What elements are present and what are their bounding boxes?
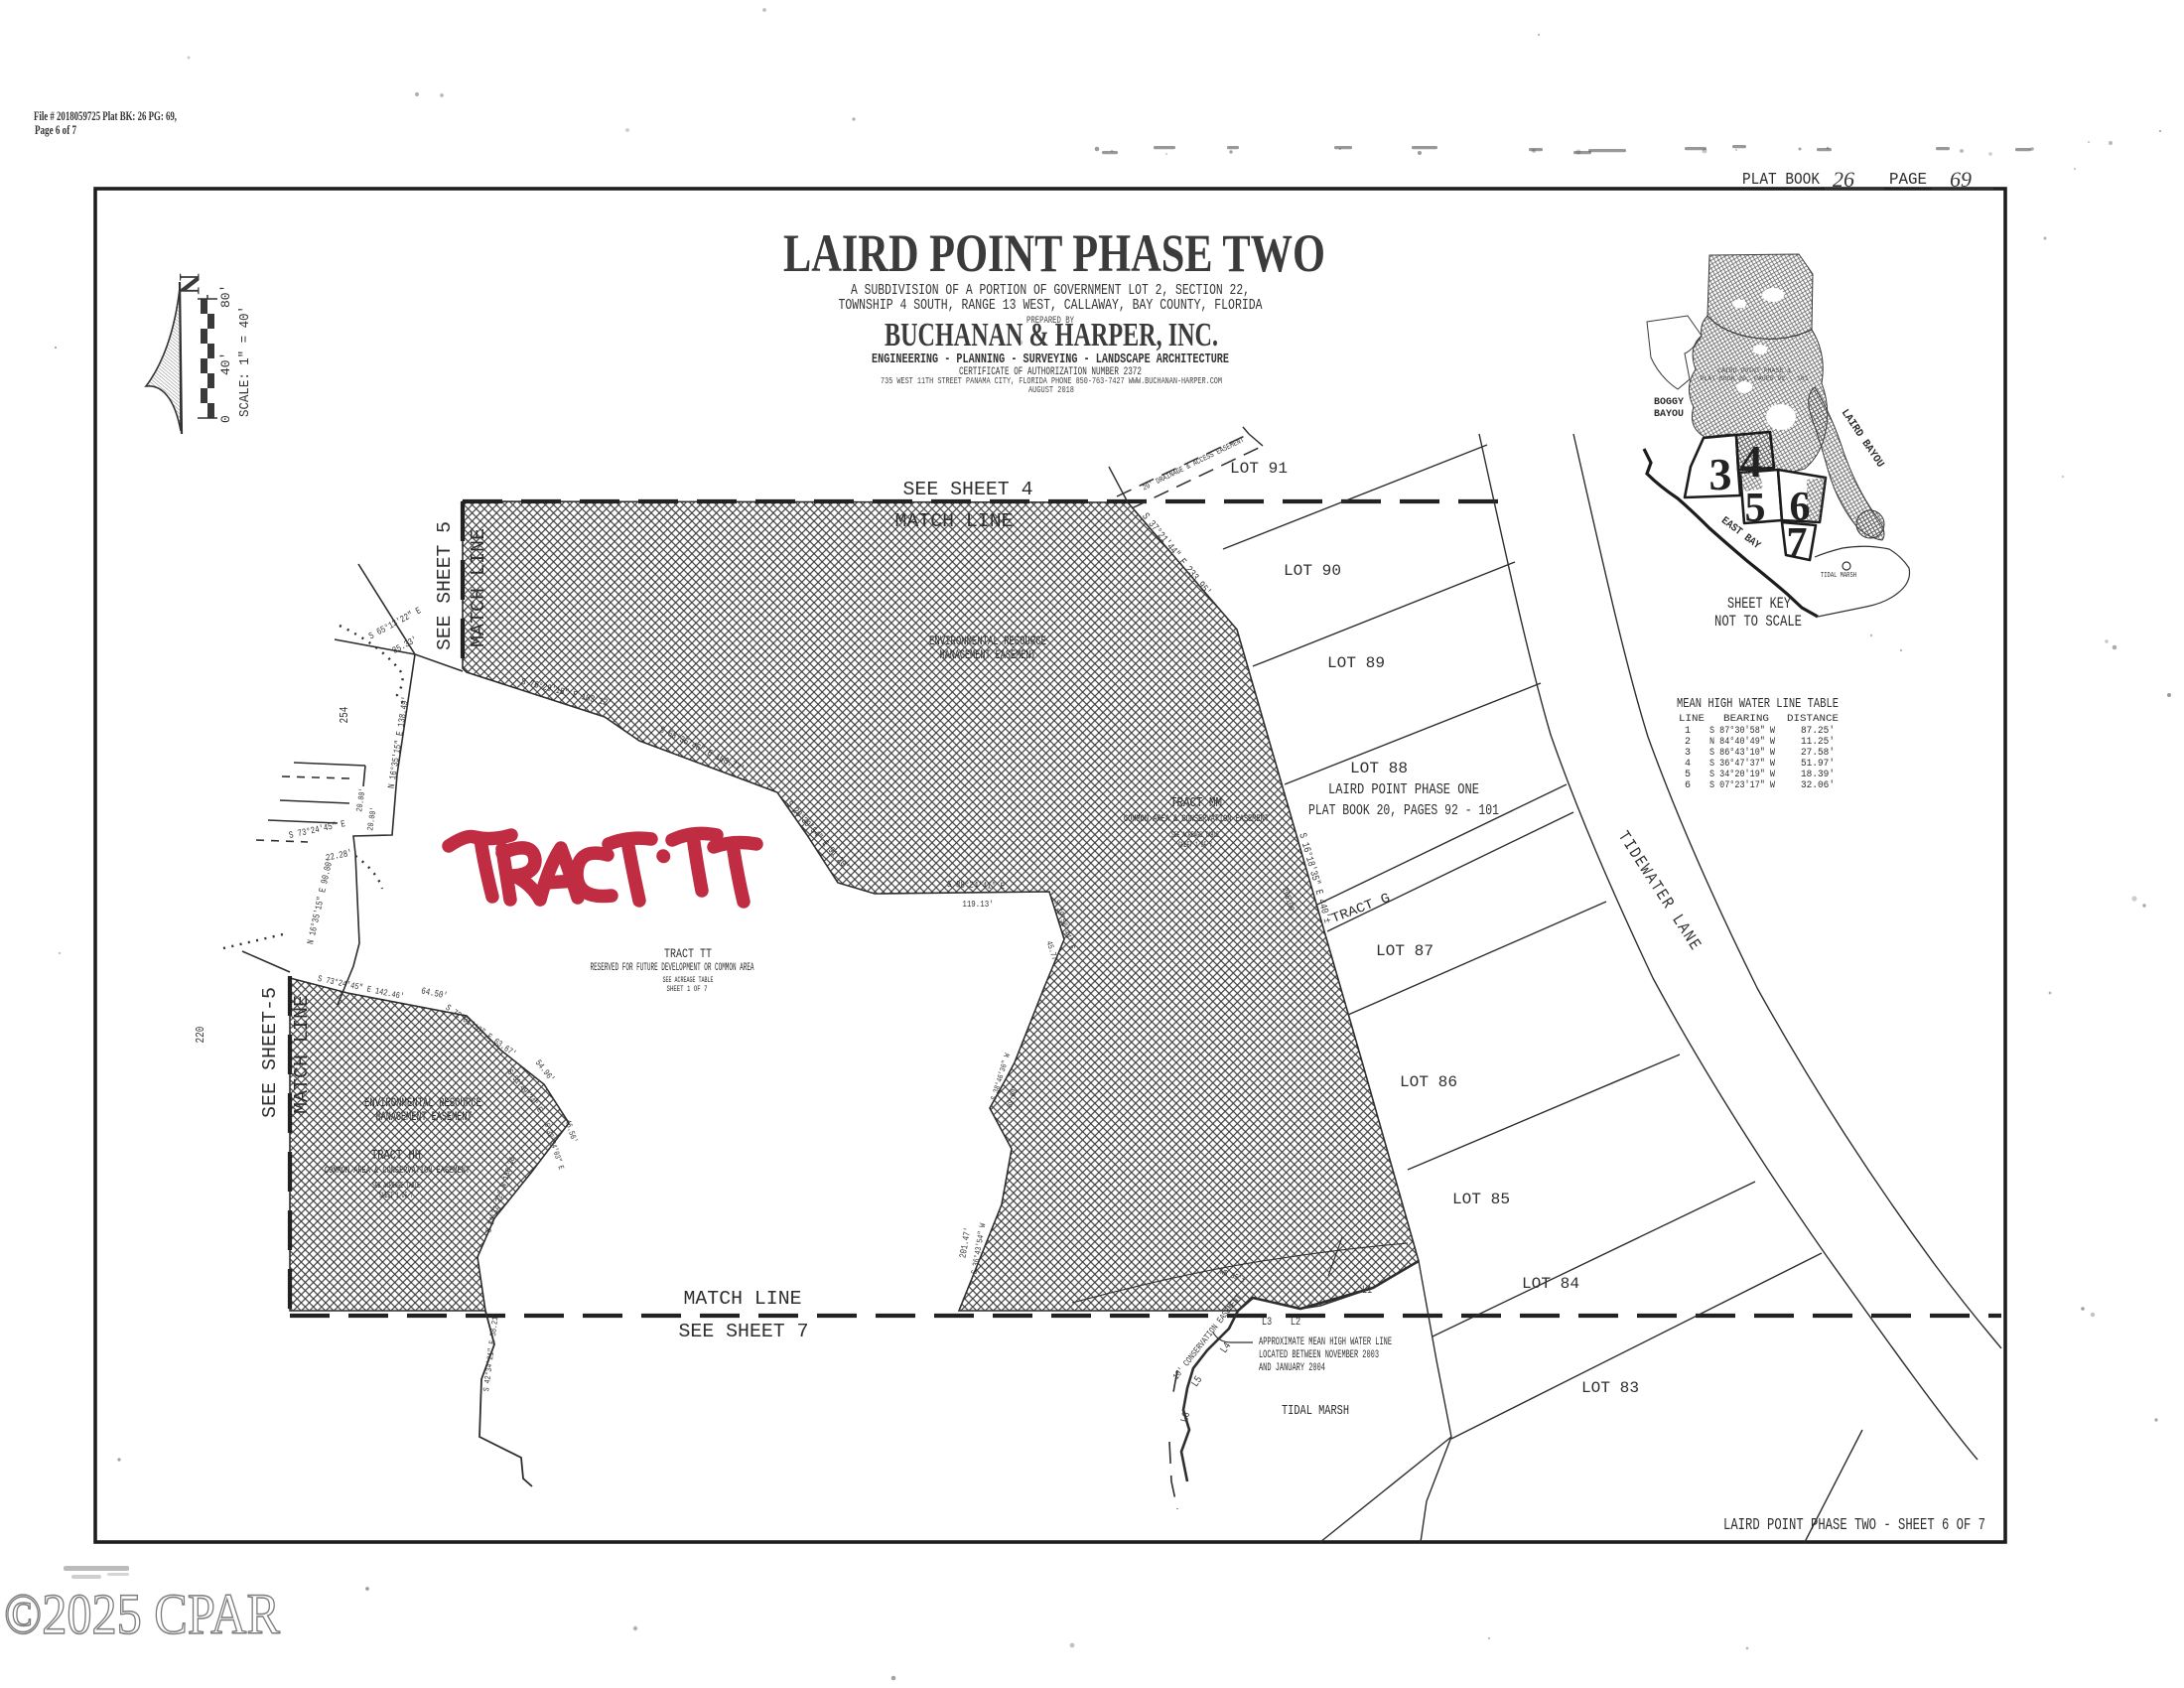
svg-text:ENVIRONMENTAL RESOURCE: ENVIRONMENTAL RESOURCE — [929, 633, 1046, 648]
svg-text:S 36°47'37" W: S 36°47'37" W — [1709, 758, 1775, 770]
svg-text:LAIRD POINT PHASE ONE: LAIRD POINT PHASE ONE — [1328, 781, 1479, 798]
svg-text:1: 1 — [1685, 726, 1691, 737]
svg-text:SCALE: 1" = 40': SCALE: 1" = 40' — [237, 306, 253, 417]
svg-text:32.06': 32.06' — [1801, 779, 1835, 791]
svg-text:BAYOU: BAYOU — [1654, 408, 1684, 420]
svg-text:7: 7 — [1787, 520, 1808, 566]
svg-text:PLAT BOOK 20, PAGES 92 - 101: PLAT BOOK 20, PAGES 92 - 101 — [1700, 375, 1808, 382]
svg-text:TOWNSHIP 4 SOUTH, RANGE 13 WES: TOWNSHIP 4 SOUTH, RANGE 13 WEST, CALLAWA… — [839, 297, 1263, 314]
svg-text:LOT 84: LOT 84 — [1522, 1275, 1579, 1293]
svg-text:BEARING: BEARING — [1723, 714, 1769, 725]
svg-text:4: 4 — [1740, 436, 1763, 487]
svg-text:LAIRD POINT PHASE TWO - SHEET: LAIRD POINT PHASE TWO - SHEET 6 OF 7 — [1723, 1516, 1985, 1535]
svg-text:LOT 90: LOT 90 — [1284, 562, 1341, 580]
svg-text:DISTANCE: DISTANCE — [1787, 714, 1839, 725]
svg-text:LOT 83: LOT 83 — [1581, 1379, 1639, 1397]
svg-text:S 87°30'58" W: S 87°30'58" W — [1709, 725, 1775, 737]
svg-text:SEE ACREAGE TABLE: SEE ACREAGE TABLE — [372, 1181, 420, 1191]
svg-text:©2025 CPAR: ©2025 CPAR — [4, 1582, 280, 1646]
svg-text:S 86°43'10" W: S 86°43'10" W — [1709, 747, 1775, 759]
svg-text:File # 2018059725 Plat BK: 26: File # 2018059725 Plat BK: 26 PG: 69, — [34, 108, 177, 123]
svg-text:MATCH LINE: MATCH LINE — [468, 528, 489, 647]
svg-text:SHEET KEY: SHEET KEY — [1727, 595, 1791, 613]
svg-text:MANAGEMENT EASEMENT: MANAGEMENT EASEMENT — [940, 647, 1036, 662]
svg-text:2: 2 — [1685, 737, 1691, 748]
svg-text:TIDAL MARSH: TIDAL MARSH — [1821, 572, 1856, 580]
svg-text:LOCATED BETWEEN NOVEMBER 2003: LOCATED BETWEEN NOVEMBER 2003 — [1259, 1349, 1379, 1361]
svg-text:TRACT TT: TRACT TT — [664, 946, 712, 961]
svg-text:SHEET 1 OF 7: SHEET 1 OF 7 — [379, 1191, 413, 1200]
svg-text:6: 6 — [1685, 780, 1691, 791]
svg-text:MANAGEMENT EASEMENT: MANAGEMENT EASEMENT — [376, 1109, 473, 1124]
svg-text:SHEET 1 OF 7: SHEET 1 OF 7 — [1178, 840, 1212, 850]
svg-text:LOT 88: LOT 88 — [1350, 760, 1408, 777]
svg-text:RESERVED FOR FUTURE DEVELOPMEN: RESERVED FOR FUTURE DEVELOPMENT OR COMMO… — [591, 962, 754, 974]
svg-text:PLAT BOOK: PLAT BOOK — [1742, 171, 1821, 190]
svg-text:SEE ACREAGE TABLE: SEE ACREAGE TABLE — [663, 976, 714, 985]
svg-text:LAIRD POINT PHASE 1: LAIRD POINT PHASE 1 — [1717, 367, 1791, 374]
svg-text:SEE SHEET 5: SEE SHEET 5 — [434, 521, 456, 650]
svg-text:87.25': 87.25' — [1801, 725, 1835, 737]
svg-text:LOT 89: LOT 89 — [1327, 654, 1385, 672]
svg-text:NOT TO SCALE: NOT TO SCALE — [1714, 613, 1802, 631]
svg-text:LOT 86: LOT 86 — [1400, 1073, 1457, 1091]
svg-text:L1: L1 — [1362, 1285, 1373, 1297]
svg-text:40': 40' — [218, 352, 233, 375]
svg-text:3: 3 — [1709, 449, 1732, 499]
svg-text:5: 5 — [1685, 770, 1691, 780]
svg-text:ENGINEERING - PLANNING - SURVE: ENGINEERING - PLANNING - SURVEYING - LAN… — [872, 352, 1229, 367]
svg-text:LAIRD POINT PHASE TWO: LAIRD POINT PHASE TWO — [783, 223, 1325, 283]
svg-text:Page 6 of 7: Page 6 of 7 — [35, 122, 76, 137]
svg-text:LINE: LINE — [1679, 714, 1705, 725]
svg-text:BOGGY: BOGGY — [1654, 396, 1685, 408]
svg-text:COMMON AREA & CONSERVATION EAS: COMMON AREA & CONSERVATION EASEMENT — [1124, 813, 1269, 825]
svg-text:PLAT BOOK 20, PAGES 92 - 101: PLAT BOOK 20, PAGES 92 - 101 — [1308, 802, 1499, 819]
svg-text:SEE SHEET-5: SEE SHEET-5 — [259, 987, 281, 1118]
svg-text:0: 0 — [218, 415, 233, 423]
svg-text:TIDAL MARSH: TIDAL MARSH — [1282, 1403, 1349, 1419]
svg-text:LOT 87: LOT 87 — [1376, 942, 1433, 960]
svg-text:LOT 85: LOT 85 — [1452, 1191, 1510, 1208]
svg-text:SEE ACREAGE TABLE: SEE ACREAGE TABLE — [1171, 830, 1219, 840]
svg-text:3: 3 — [1685, 748, 1691, 759]
svg-text:TRACT MM: TRACT MM — [1170, 795, 1222, 811]
svg-text:AUGUST 2018: AUGUST 2018 — [1028, 385, 1074, 395]
svg-text:PAGE: PAGE — [1889, 171, 1927, 190]
svg-text:BUCHANAN & HARPER, INC.: BUCHANAN & HARPER, INC. — [885, 317, 1218, 353]
svg-text:4: 4 — [1685, 759, 1691, 770]
svg-text:SHEET 1 OF 7: SHEET 1 OF 7 — [667, 985, 708, 994]
svg-text:AND JANUARY 2004: AND JANUARY 2004 — [1259, 1362, 1325, 1374]
svg-text:119.13': 119.13' — [962, 899, 993, 910]
svg-text:S 07°23'17" W: S 07°23'17" W — [1709, 779, 1775, 791]
svg-text:MATCH LINE: MATCH LINE — [895, 510, 1014, 532]
svg-text:254: 254 — [338, 707, 351, 724]
svg-text:MATCH LINE: MATCH LINE — [684, 1288, 802, 1310]
svg-text:80': 80' — [218, 285, 233, 308]
svg-text:S 34°20'19" W: S 34°20'19" W — [1709, 769, 1775, 780]
svg-text:L2: L2 — [1291, 1317, 1300, 1329]
svg-text:N: N — [173, 273, 205, 295]
svg-text:LOT 91: LOT 91 — [1230, 460, 1288, 478]
svg-text:11.25': 11.25' — [1801, 736, 1835, 748]
svg-text:N 84°40'49" W: N 84°40'49" W — [1709, 736, 1775, 748]
svg-text:L3: L3 — [1262, 1317, 1272, 1329]
svg-text:5: 5 — [1745, 486, 1766, 531]
svg-text:51.97': 51.97' — [1801, 758, 1835, 770]
svg-text:COMMON AREA & CONSERVATION EAS: COMMON AREA & CONSERVATION EASEMENT — [325, 1165, 470, 1177]
svg-text:APPROXIMATE MEAN HIGH WATER LI: APPROXIMATE MEAN HIGH WATER LINE — [1259, 1336, 1392, 1348]
svg-text:MATCH LINE: MATCH LINE — [291, 995, 313, 1114]
svg-text:ENVIRONMENTAL RESOURCE: ENVIRONMENTAL RESOURCE — [364, 1095, 481, 1110]
svg-text:TRACT HH: TRACT HH — [371, 1148, 421, 1164]
svg-text:18.39': 18.39' — [1801, 769, 1835, 780]
svg-text:SEE SHEET 7: SEE SHEET 7 — [679, 1321, 809, 1342]
svg-text:220: 220 — [194, 1027, 207, 1044]
svg-text:SEE SHEET 4: SEE SHEET 4 — [903, 479, 1033, 500]
svg-text:S 88°24'41" E: S 88°24'41" E — [947, 879, 1006, 892]
svg-text:27.58': 27.58' — [1801, 747, 1835, 759]
svg-text:MEAN HIGH WATER LINE TABLE: MEAN HIGH WATER LINE TABLE — [1677, 697, 1839, 712]
